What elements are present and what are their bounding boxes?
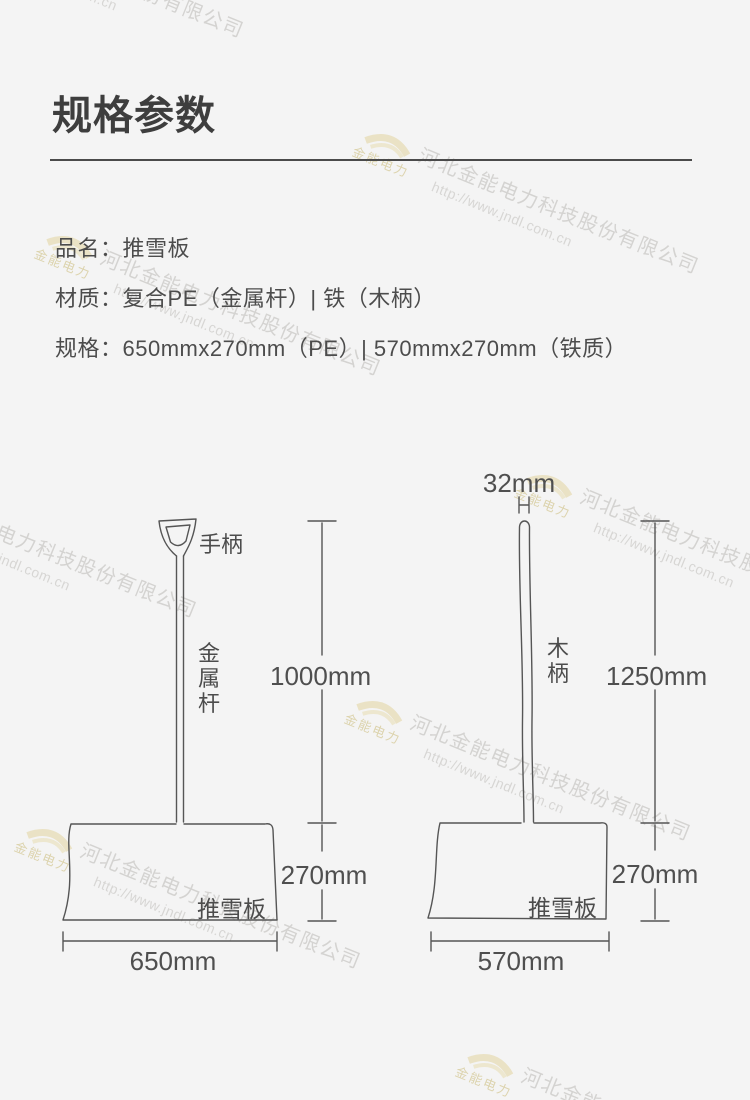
svg-text:金能电力: 金能电力 [454,1064,515,1100]
spec-row-size: 规格：650mmx270mm（PE）| 570mmx270mm（铁质） [55,331,627,363]
svg-text:金能电力: 金能电力 [13,839,74,875]
right-board-height-dimension: 270mm [605,859,705,890]
right-handle-width-mark [519,497,529,513]
watermark: 金能电力 河北金能电力科技股份有限公司 http://www.jndl.com.… [0,455,295,711]
jinneng-logo-icon: 金能电力 [13,812,86,877]
right-pole-material-label: 木柄 [545,636,571,686]
jinneng-logo-icon: 金能电力 [454,1037,527,1100]
jinneng-logo-icon: 金能电力 [351,117,424,182]
spec-value: 复合PE（金属杆）| 铁（木柄） [123,286,436,311]
spec-row-material: 材质：复合PE（金属杆）| 铁（木柄） [55,281,436,313]
page-title: 规格参数 [52,83,216,141]
watermark: 金能电力 河北金能电力科技股份有限公司 http://www.jndl.com.… [0,806,459,1062]
left-handle-grip-hole [166,525,190,546]
watermark-url-text: http://www.jndl.com.cn [0,0,120,14]
watermark-company-text: 河北金能电力科技股份有限公司 [576,481,750,621]
left-pole-height-dimension: 1000mm [270,661,370,692]
watermark-url-text: http://www.jndl.com.cn [0,522,73,593]
watermark-company-text: 河北金能电力科技股份有限公司 [517,1060,750,1100]
right-board-label: 推雪板 [528,889,597,923]
left-board-height-dimension: 270mm [274,860,374,891]
spec-value: 推雪板 [123,236,191,261]
jinneng-logo-icon: 金能电力 [343,684,416,749]
right-handle-width-dimension: 32mm [469,468,569,499]
title-divider [50,159,692,161]
left-pole-material-label: 金属杆 [196,641,222,716]
watermark-url-text: http://www.jndl.com.cn [422,745,567,816]
spec-row-product-name: 品名：推雪板 [55,231,190,263]
shovel-diagrams [0,0,750,1100]
left-board-width-dimension: 650mm [123,946,223,977]
left-board-label: 推雪板 [197,890,266,924]
spec-label: 材质： [55,286,123,311]
right-pole-height-dimension: 1250mm [606,661,706,692]
watermark-company-text: 河北金能电力科技股份有限公司 [0,484,202,624]
watermark-company-text: 河北金能电力科技股份有限公司 [0,0,249,43]
watermark: 金能电力 河北金能电力科技股份有限公司 http://www.jndl.com.… [336,111,750,367]
watermark-url-text: http://www.jndl.com.cn [592,519,737,590]
right-board-width-dimension: 570mm [471,946,571,977]
left-handle-outline [159,519,196,556]
svg-text:金能电力: 金能电力 [343,711,404,747]
watermark: 金能电力 河北金能电力科技股份有限公司 http://www.jndl.com.… [439,1031,750,1100]
watermark-company-text: 河北金能电力科技股份有限公司 [406,707,696,847]
spec-label: 品名： [55,236,123,261]
watermark-url-text: http://www.jndl.com.cn [430,178,575,249]
left-pole-lines [177,556,184,822]
svg-text:金能电力: 金能电力 [351,144,412,180]
right-pole-outline [519,521,533,822]
spec-label: 规格： [55,336,123,361]
product-spec-sheet: 金能电力 河北金能电力科技股份有限公司 http://www.jndl.com.… [0,0,750,1100]
left-handle-label: 手柄 [199,527,243,559]
spec-value: 650mmx270mm（PE）| 570mmx270mm（铁质） [123,336,628,361]
